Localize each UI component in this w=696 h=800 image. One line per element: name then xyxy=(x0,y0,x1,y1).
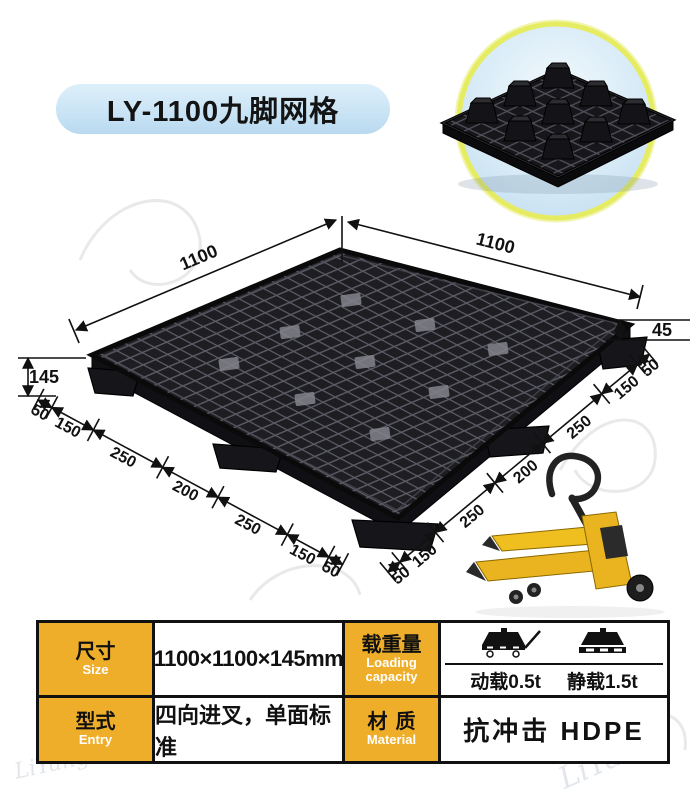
static-load-icon xyxy=(578,628,628,658)
entry-label-zh: 型式 xyxy=(76,712,116,733)
material-value-cell: 抗冲击 HDPE xyxy=(441,698,667,761)
entry-value-cell: 四向进叉，单面标准 xyxy=(155,698,345,761)
size-value-cell: 1100×1100×145mm xyxy=(155,623,345,698)
dim-label: 250 xyxy=(107,444,139,472)
material-label-en: Material xyxy=(367,733,416,747)
dim-label: 200 xyxy=(510,457,541,487)
product-photo xyxy=(443,21,673,221)
dim-label: 1100 xyxy=(474,229,517,258)
loading-label-zh: 载重量 xyxy=(362,635,422,656)
size-value: 1100×1100×145mm xyxy=(155,646,343,672)
dim-label: 45 xyxy=(652,320,672,340)
loading-label-cell: 载重量 Loading capacity xyxy=(345,623,441,698)
entry-label-cell: 型式 Entry xyxy=(39,698,155,761)
dim-label: 250 xyxy=(564,412,595,442)
dim-label: 200 xyxy=(170,478,202,506)
entry-value: 四向进叉，单面标准 xyxy=(155,698,342,761)
pallet-jack-photo xyxy=(466,456,665,618)
dim-label: 150 xyxy=(611,373,642,403)
material-value: 抗冲击 HDPE xyxy=(463,711,644,748)
loading-icons xyxy=(445,623,663,665)
dim-label: 150 xyxy=(52,414,84,442)
jack-handle xyxy=(549,456,597,499)
material-label-cell: 材质 Material xyxy=(345,698,441,761)
static-load-value: 静载1.5t xyxy=(567,667,638,694)
product-sheet: LiYang LiYang LY-1100九脚网格 xyxy=(0,0,696,800)
spec-table: 尺寸 Size 1100×1100×145mm 载重量 Loading capa… xyxy=(36,620,670,764)
material-label-zh: 材质 xyxy=(368,712,424,733)
pallet-drawing xyxy=(88,250,647,551)
dim-label: 145 xyxy=(29,367,59,387)
size-label-en: Size xyxy=(82,663,108,677)
loading-label-en: Loading capacity xyxy=(345,656,438,683)
dim-label: 250 xyxy=(232,511,264,539)
entry-label-en: Entry xyxy=(79,733,112,747)
size-label-zh: 尺寸 xyxy=(76,642,116,663)
loading-value-cell: 动载0.5t 静载1.5t xyxy=(441,623,667,698)
product-title: LY-1100九脚网格 xyxy=(107,88,339,130)
size-label-cell: 尺寸 Size xyxy=(39,623,155,698)
dynamic-load-icon xyxy=(480,628,544,658)
dim-label: 250 xyxy=(457,501,488,531)
dim-label: 1100 xyxy=(177,241,221,275)
dynamic-load-value: 动载0.5t xyxy=(470,667,541,694)
product-title-badge: LY-1100九脚网格 xyxy=(56,84,390,134)
